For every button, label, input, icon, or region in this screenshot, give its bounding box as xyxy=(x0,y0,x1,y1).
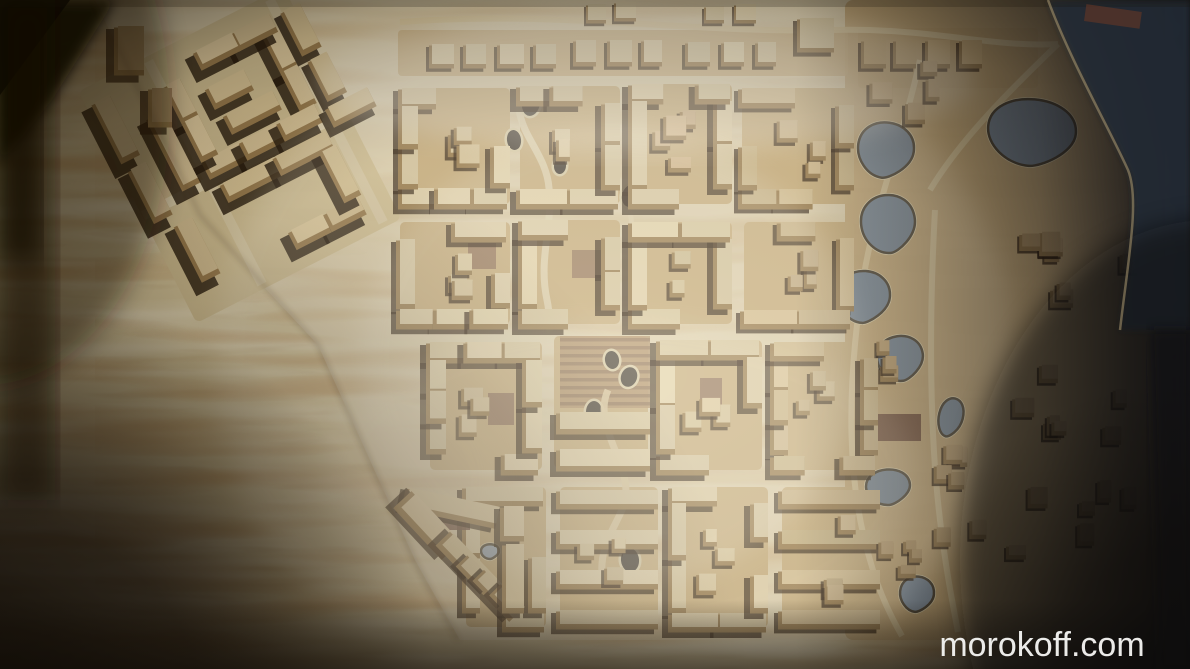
svg-text:morokoff.com: morokoff.com xyxy=(939,626,1144,664)
